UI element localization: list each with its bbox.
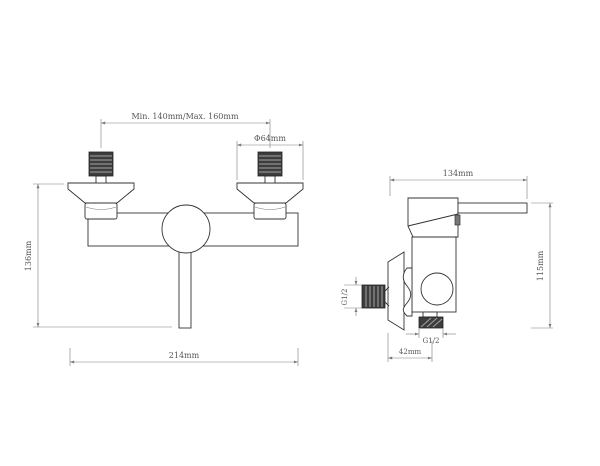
side-view: 134mm 115mm G1/2 G1/2	[341, 169, 553, 362]
handle-set-screw	[455, 215, 460, 225]
escutcheon-left	[68, 183, 134, 203]
handle-side	[408, 198, 527, 237]
dim-mounting-centers-label: Min. 140mm/Max. 160mm	[131, 112, 239, 121]
ball-side	[421, 273, 453, 305]
outlet-connector-side	[419, 312, 443, 328]
dim-outlet-thread-label: G1/2	[423, 337, 440, 345]
hex-nut-left	[85, 203, 117, 219]
dim-side-depth-label: 134mm	[443, 169, 474, 178]
dim-outlet-thread: G1/2	[406, 329, 456, 345]
outlet-neck	[423, 312, 437, 317]
inlet-connector-left	[68, 152, 134, 219]
dim-inlet-thread: G1/2	[341, 277, 362, 316]
escutcheon-right	[237, 183, 303, 203]
dim-front-width: 214mm	[70, 348, 298, 366]
dim-side-height-label: 115mm	[536, 250, 545, 281]
handle-rod-front	[179, 250, 191, 328]
dim-wall-to-outlet-label: 42mm	[399, 348, 422, 356]
drawing-canvas: Min. 140mm/Max. 160mm Φ64mm 136mm 214mm	[0, 0, 600, 466]
hex-nut-right	[254, 203, 286, 219]
technical-drawing: Min. 140mm/Max. 160mm Φ64mm 136mm 214mm	[0, 0, 600, 466]
neck-left	[96, 176, 106, 183]
inlet-connector-right	[237, 152, 303, 219]
dim-escutcheon-diameter-label: Φ64mm	[254, 134, 286, 143]
dim-inlet-thread-label: G1/2	[341, 289, 349, 306]
dim-front-height-label: 136mm	[24, 240, 33, 271]
dim-side-depth: 134mm	[390, 169, 527, 199]
handle-lever-side	[458, 203, 527, 213]
front-view: Min. 140mm/Max. 160mm Φ64mm 136mm 214mm	[24, 112, 303, 366]
cartridge-circle-front	[162, 205, 210, 253]
dim-front-width-label: 214mm	[169, 351, 200, 360]
inlet-connector-side	[362, 285, 389, 308]
dim-mounting-centers: Min. 140mm/Max. 160mm	[101, 112, 270, 148]
hex-nut-side	[403, 268, 412, 316]
escutcheon-side	[388, 252, 404, 330]
neck-right	[265, 176, 275, 183]
handle-cap-side	[408, 198, 458, 237]
dim-side-height: 115mm	[531, 203, 553, 328]
